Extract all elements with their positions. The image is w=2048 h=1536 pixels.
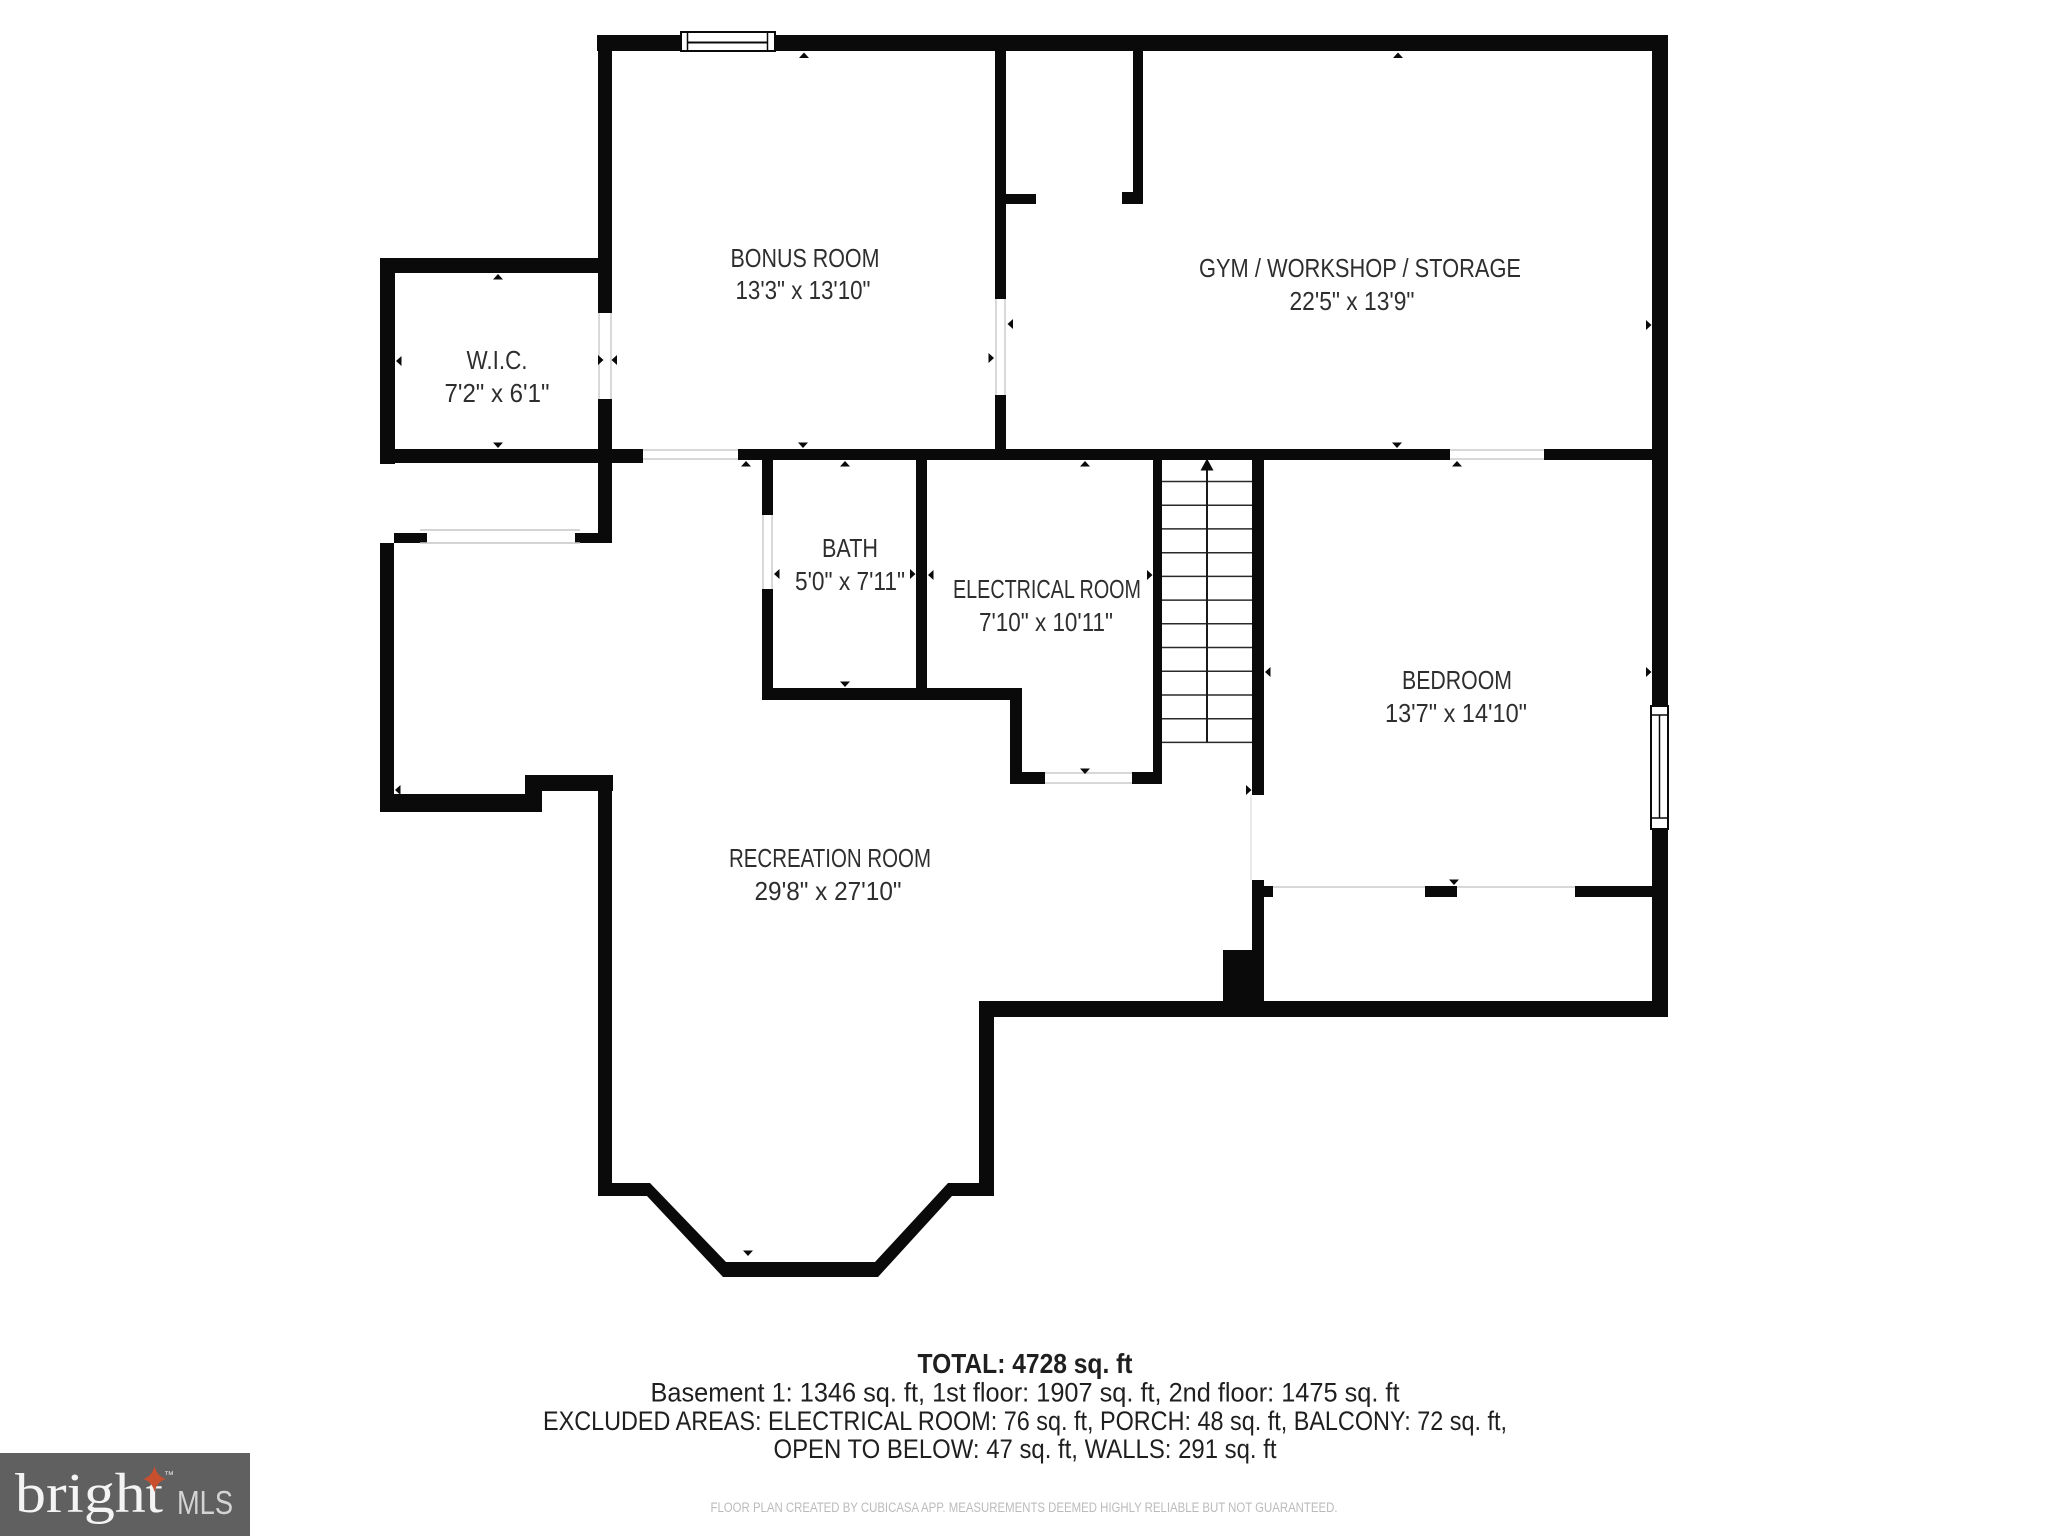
svg-text:BEDROOM: BEDROOM bbox=[1402, 665, 1512, 695]
svg-text:TOTAL: 4728 sq. ft: TOTAL: 4728 sq. ft bbox=[918, 1348, 1133, 1379]
svg-text:22'5" x 13'9": 22'5" x 13'9" bbox=[1290, 286, 1415, 316]
svg-text:7'2" x 6'1": 7'2" x 6'1" bbox=[445, 378, 550, 408]
svg-text:BATH: BATH bbox=[822, 533, 878, 563]
svg-text:Basement 1: 1346 sq. ft, 1st f: Basement 1: 1346 sq. ft, 1st floor: 1907… bbox=[651, 1378, 1400, 1408]
svg-text:bright: bright bbox=[15, 1463, 163, 1525]
svg-text:FLOOR PLAN CREATED BY CUBICASA: FLOOR PLAN CREATED BY CUBICASA APP. MEAS… bbox=[711, 1500, 1338, 1515]
svg-text:RECREATION ROOM: RECREATION ROOM bbox=[729, 843, 931, 873]
svg-text:EXCLUDED AREAS: ELECTRICAL ROO: EXCLUDED AREAS: ELECTRICAL ROOM: 76 sq. … bbox=[543, 1406, 1507, 1436]
svg-text:13'3" x 13'10": 13'3" x 13'10" bbox=[736, 275, 871, 305]
svg-text:7'10" x 10'11": 7'10" x 10'11" bbox=[979, 607, 1113, 637]
svg-text:OPEN TO BELOW: 47 sq. ft, WALL: OPEN TO BELOW: 47 sq. ft, WALLS: 291 sq.… bbox=[774, 1434, 1277, 1464]
svg-text:MLS: MLS bbox=[177, 1484, 233, 1521]
svg-text:5'0" x 7'11": 5'0" x 7'11" bbox=[795, 566, 905, 596]
svg-text:ELECTRICAL ROOM: ELECTRICAL ROOM bbox=[953, 574, 1141, 604]
svg-text:™: ™ bbox=[164, 1470, 174, 1481]
svg-text:13'7" x 14'10": 13'7" x 14'10" bbox=[1385, 698, 1527, 728]
svg-text:BONUS ROOM: BONUS ROOM bbox=[731, 243, 880, 273]
svg-text:W.I.C.: W.I.C. bbox=[467, 345, 528, 375]
svg-text:GYM / WORKSHOP / STORAGE: GYM / WORKSHOP / STORAGE bbox=[1199, 253, 1521, 283]
svg-text:29'8" x 27'10": 29'8" x 27'10" bbox=[755, 876, 902, 906]
